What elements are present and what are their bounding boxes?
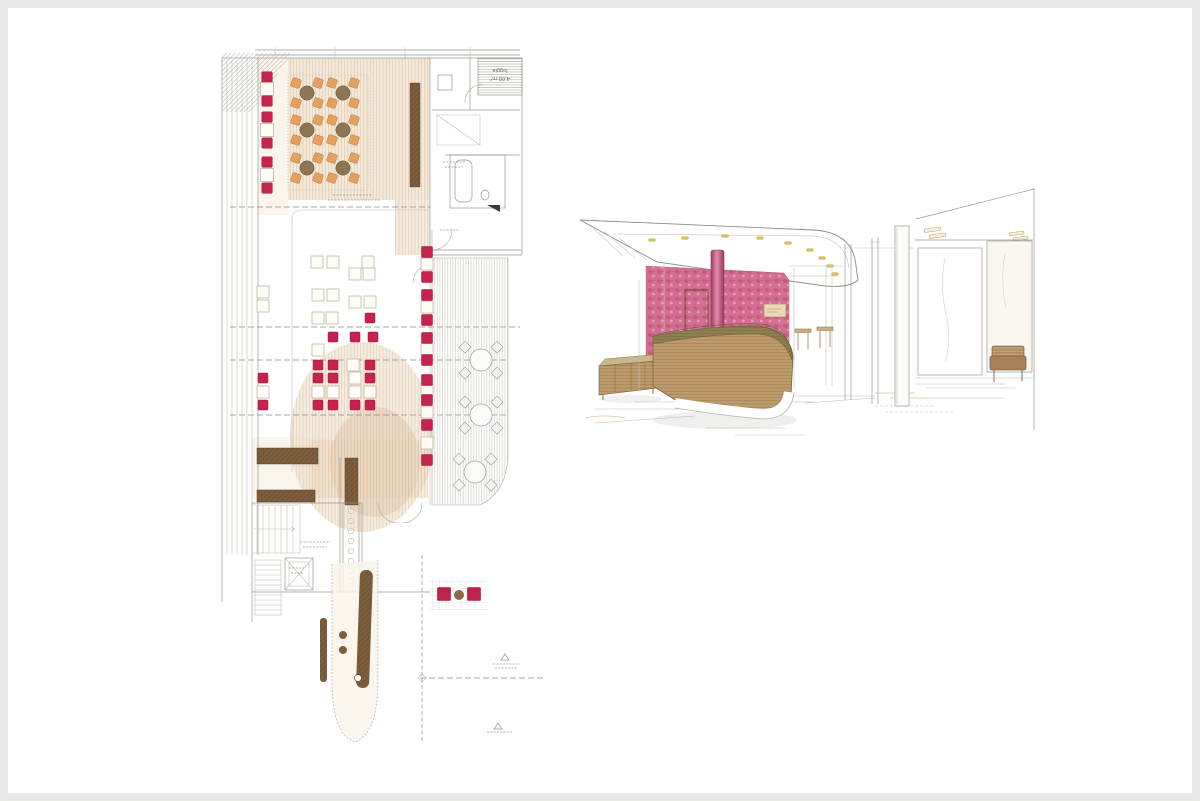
lounge-corner (430, 580, 488, 610)
dining-table (362, 256, 374, 268)
wall-table (795, 329, 811, 333)
crimson-seat (328, 332, 338, 342)
crimson-seat (365, 400, 375, 410)
bench-table (261, 83, 274, 96)
dining-table (421, 301, 433, 313)
bathtub (455, 160, 472, 202)
crimson-seat (422, 315, 433, 326)
crimson-seat (365, 360, 375, 370)
dining-seats-group (257, 256, 378, 410)
dining-table (349, 372, 361, 384)
wc-fixture (438, 75, 452, 90)
table-top (300, 86, 314, 100)
downlight (649, 239, 656, 242)
dining-table (421, 406, 433, 418)
dining-table (349, 386, 361, 398)
loggia-label: loggia (492, 67, 507, 73)
crimson-seat (328, 373, 338, 383)
ceiling-light-fixture (1009, 231, 1028, 241)
dining-table (311, 256, 323, 268)
lounge-table (454, 590, 464, 600)
crimson-seat (262, 183, 273, 194)
dining-table (326, 312, 338, 324)
crimson-seat (328, 360, 338, 370)
dining-table (312, 386, 324, 398)
loggia-area-label: 4,00 m² (490, 75, 510, 81)
bar-counter (320, 560, 378, 742)
table-top (336, 86, 350, 100)
wall-table (817, 327, 833, 331)
terrace (432, 258, 508, 505)
scan-page: loggia 4,00 m² (0, 0, 1200, 801)
downlight (807, 249, 814, 252)
dining-table (421, 384, 433, 396)
crimson-seat (258, 400, 268, 410)
crimson-seat (350, 332, 360, 342)
crimson-seat (365, 313, 375, 323)
downlight (722, 235, 729, 238)
interior-perspective-drawing (575, 188, 1045, 480)
crimson-seat (422, 272, 433, 283)
dining-table (312, 344, 324, 356)
downlight (785, 242, 792, 245)
table-top (300, 123, 314, 137)
table-top (336, 123, 350, 137)
crimson-seat (422, 333, 433, 344)
dining-table (349, 268, 361, 280)
sink (355, 675, 362, 682)
crimson-seat (313, 360, 323, 370)
dining-table (312, 289, 324, 301)
crimson-seat (368, 332, 378, 342)
level-marker-icon (494, 723, 502, 729)
bench (257, 448, 318, 464)
crimson-seat (313, 373, 323, 383)
crimson-seat (262, 72, 273, 83)
level-marker-icon (501, 654, 509, 660)
dining-table (421, 258, 433, 270)
ceiling-light-fixture (924, 227, 946, 239)
downlight (832, 273, 839, 276)
terrace-table-top (470, 404, 492, 426)
bath-room (450, 155, 505, 208)
floor-plan-drawing: loggia 4,00 m² (215, 42, 551, 754)
wood-wall-strip (345, 458, 358, 505)
plan-back-rooms: loggia 4,00 m² (432, 58, 522, 255)
dining-table (421, 437, 433, 449)
dining-table (364, 386, 376, 398)
bench-table (261, 169, 274, 182)
armchair (990, 346, 1026, 382)
crimson-seat (365, 373, 375, 383)
dining-table (363, 268, 375, 280)
dining-table (349, 296, 361, 308)
wood-wall-strip (410, 83, 420, 187)
glass-room (895, 188, 1034, 430)
dining-table (327, 386, 339, 398)
bench (257, 490, 315, 502)
bar-stool (339, 646, 347, 654)
downlight (757, 237, 764, 240)
table-top (336, 161, 350, 175)
crimson-seat (262, 157, 273, 168)
crimson-seat (350, 400, 360, 410)
bar-stool (339, 631, 347, 639)
staircase (255, 560, 281, 615)
dining-table (364, 296, 376, 308)
toilet (481, 190, 489, 200)
crimson-seat (313, 400, 323, 410)
dining-table (312, 312, 324, 324)
terrace-table-top (464, 461, 486, 483)
lounge-chair (468, 588, 481, 601)
downlight (682, 237, 689, 240)
crimson-seat (262, 138, 273, 149)
crimson-seat (422, 455, 433, 466)
table-top (300, 161, 314, 175)
window-bench-group (261, 72, 274, 194)
crimson-seat (258, 373, 268, 383)
dining-table (257, 386, 269, 398)
reception-desk (653, 324, 797, 429)
dining-table (257, 286, 269, 298)
section-marker (487, 205, 500, 212)
crimson-seat (422, 355, 433, 366)
wall-sign (764, 304, 786, 317)
terrace-table-top (470, 349, 492, 371)
dining-table (257, 300, 269, 312)
dining-table (327, 256, 339, 268)
crimson-seat (262, 112, 273, 123)
crimson-seat (422, 290, 433, 301)
crimson-seat (422, 375, 433, 386)
crimson-seat (262, 96, 273, 107)
dining-table (347, 359, 359, 371)
bar-screen (320, 618, 327, 682)
crimson-seat (422, 247, 433, 258)
lounge-chair (438, 588, 451, 601)
wood-sideboard (598, 354, 662, 403)
crimson-seat (328, 400, 338, 410)
dining-table (327, 289, 339, 301)
dining-table (421, 343, 433, 355)
downlight (819, 257, 826, 260)
crimson-seat (422, 420, 433, 431)
crimson-seat (422, 395, 433, 406)
bench-table (261, 124, 274, 137)
glass-pane (918, 248, 982, 375)
